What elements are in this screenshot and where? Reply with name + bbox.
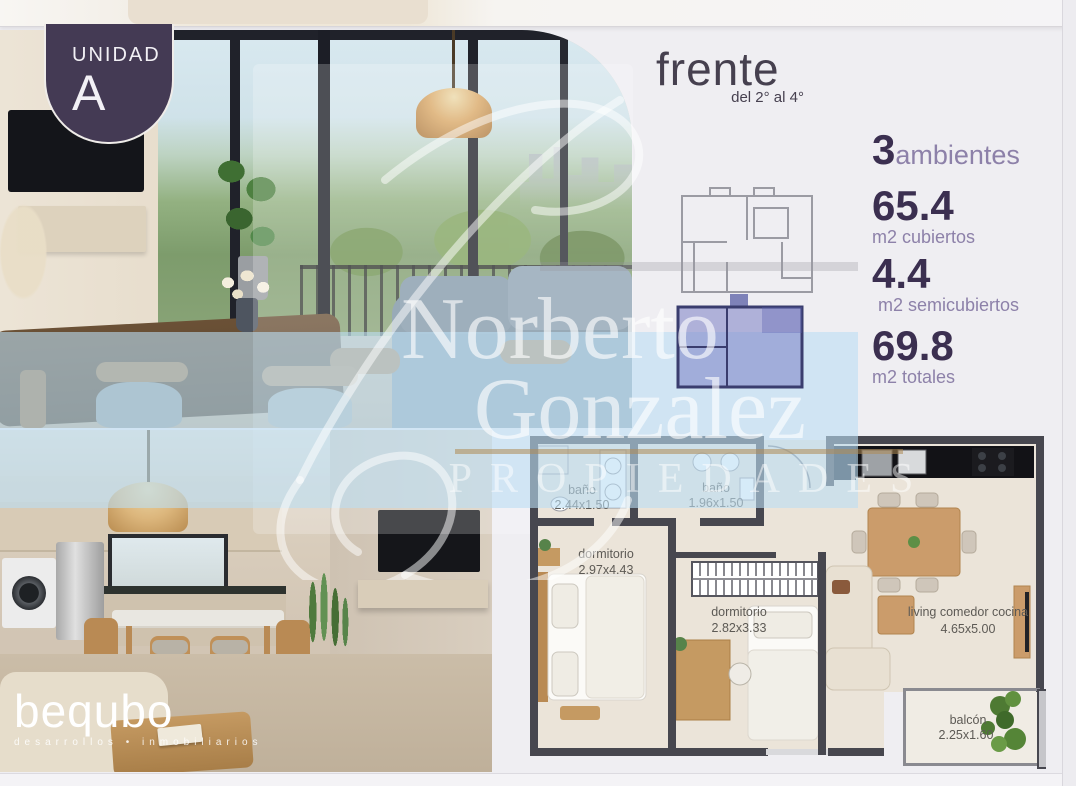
stat-ambientes-label: ambientes [895,140,1020,171]
chair-cushion [212,640,248,654]
stat-ambientes-value: 3 [872,126,895,174]
room-label: balcón [950,713,987,727]
previous-slide-remnant [128,0,428,24]
snake-plant [296,562,352,662]
room-label: dormitorio [578,547,634,561]
countertop [104,586,286,594]
room-label: living comedor cocina [908,605,1028,619]
right-edge-strip [1062,0,1076,786]
stat-label: m2 totales [872,367,955,388]
floating-shelf [358,580,488,608]
stat-cubiertos: 65.4 m2 cubiertos [872,186,975,248]
stat-totales: 69.8 m2 totales [872,326,955,388]
room-size: 2.97x4.43 [579,563,634,577]
stat-value: 69.8 [872,326,955,366]
chair-cushion [152,640,188,654]
watermark-gold-line [455,449,903,454]
keyplan-unit-highlight [678,294,802,387]
developer-name: bequbo [14,688,263,734]
unit-badge-letter: A [72,67,172,120]
stat-value: 4.4 [872,254,1019,294]
stat-label: m2 semicubiertos [878,295,1019,316]
kitchen-window [108,534,228,594]
dining-table [112,610,284,626]
stat-label: m2 cubiertos [872,227,975,248]
previous-slide-strip [0,0,1076,27]
washer-door [12,576,46,610]
flyer-canvas: bequbo desarrollos • inmobiliarios [0,0,1076,786]
orientation-header: frente del 2° al 4° [656,46,806,106]
stat-semicubiertos: 4.4 m2 semicubiertos [872,254,1019,316]
room-label: dormitorio [711,605,767,619]
stat-value: 65.4 [872,186,975,226]
room-size: 2.82x3.33 [712,621,767,635]
developer-logo: bequbo desarrollos • inmobiliarios [14,688,263,748]
keyplan-outline [682,188,812,292]
keyplan [672,182,822,402]
orientation-title: frente [656,46,806,92]
developer-tagline: desarrollos • inmobiliarios [14,737,263,748]
stat-ambientes: 3 ambientes [872,126,1020,174]
room-size: 2.25x1.60 [939,728,994,742]
unit-badge-label: UNIDAD [72,44,172,67]
room-size: 4.65x5.00 [941,622,996,636]
